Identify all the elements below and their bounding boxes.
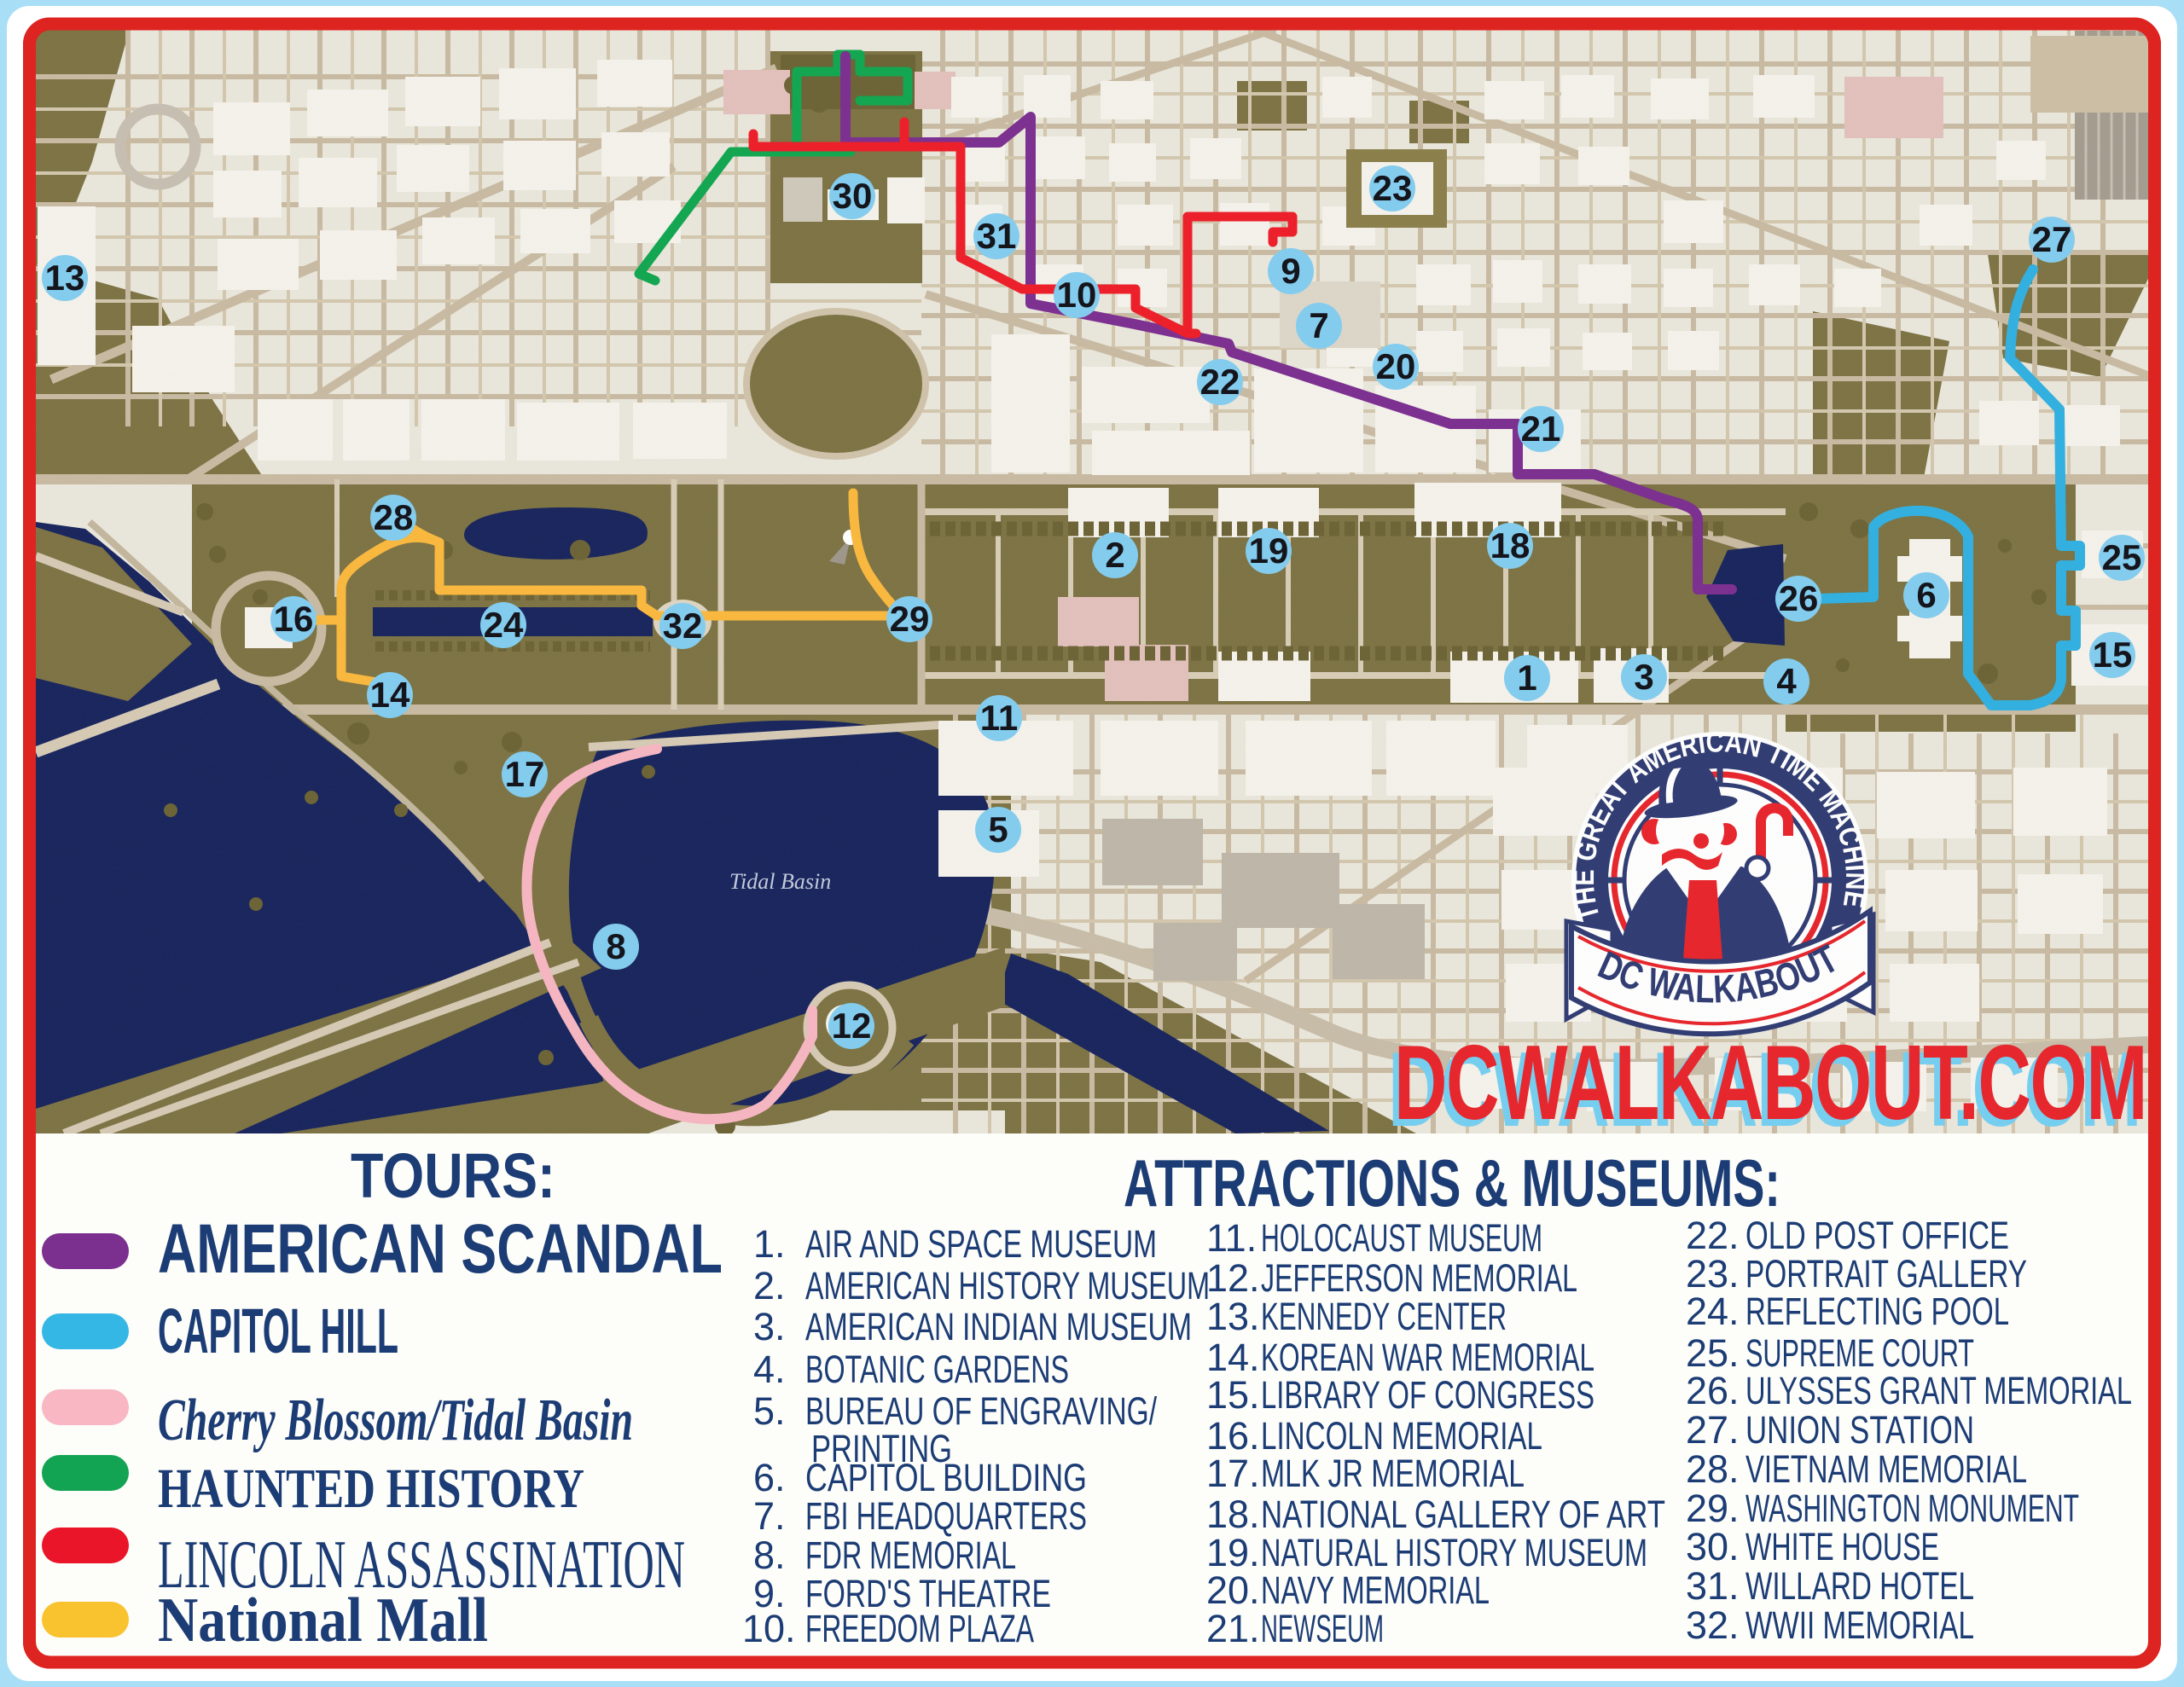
- svg-text:AMERICAN SCANDAL: AMERICAN SCANDAL: [158, 1210, 723, 1288]
- svg-text:AMERICAN INDIAN MUSEUM: AMERICAN INDIAN MUSEUM: [805, 1305, 1192, 1348]
- svg-text:CAPITOL HILL: CAPITOL HILL: [158, 1296, 398, 1366]
- svg-text:WASHINGTON MONUMENT: WASHINGTON MONUMENT: [1745, 1487, 2079, 1530]
- svg-text:5.: 5.: [753, 1389, 786, 1433]
- svg-text:NEWSEUM: NEWSEUM: [1261, 1607, 1384, 1650]
- svg-text:3.: 3.: [753, 1305, 786, 1348]
- svg-text:12.: 12.: [1206, 1256, 1260, 1300]
- svg-text:4.: 4.: [753, 1348, 786, 1391]
- svg-text:AIR AND SPACE MUSEUM: AIR AND SPACE MUSEUM: [805, 1222, 1157, 1266]
- svg-text:20.: 20.: [1206, 1568, 1260, 1612]
- svg-text:WWII MEMORIAL: WWII MEMORIAL: [1745, 1603, 1974, 1647]
- svg-text:11.: 11.: [1206, 1216, 1257, 1260]
- svg-text:6.: 6.: [753, 1456, 786, 1499]
- svg-text:JEFFERSON MEMORIAL: JEFFERSON MEMORIAL: [1261, 1256, 1577, 1300]
- svg-text:CAPITOL BUILDING: CAPITOL BUILDING: [805, 1456, 1087, 1499]
- svg-text:AMERICAN HISTORY MUSEUM: AMERICAN HISTORY MUSEUM: [805, 1264, 1210, 1307]
- svg-text:28.: 28.: [1686, 1447, 1740, 1491]
- svg-text:7.: 7.: [753, 1494, 786, 1538]
- svg-text:WHITE HOUSE: WHITE HOUSE: [1745, 1525, 1939, 1568]
- svg-text:1.: 1.: [753, 1222, 786, 1266]
- svg-text:17.: 17.: [1206, 1452, 1260, 1495]
- svg-text:24.: 24.: [1686, 1290, 1740, 1333]
- svg-text:FREEDOM PLAZA: FREEDOM PLAZA: [805, 1607, 1034, 1650]
- svg-text:8.: 8.: [753, 1533, 786, 1577]
- svg-text:KENNEDY CENTER: KENNEDY CENTER: [1261, 1295, 1507, 1338]
- svg-text:22.: 22.: [1686, 1214, 1740, 1257]
- svg-text:32.: 32.: [1686, 1603, 1740, 1647]
- svg-text:BOTANIC GARDENS: BOTANIC GARDENS: [805, 1348, 1069, 1391]
- svg-text:National Mall: National Mall: [158, 1586, 488, 1655]
- svg-text:NAVY MEMORIAL: NAVY MEMORIAL: [1261, 1568, 1490, 1612]
- svg-text:ULYSSES GRANT MEMORIAL: ULYSSES GRANT MEMORIAL: [1745, 1369, 2132, 1412]
- svg-text:26.: 26.: [1686, 1369, 1740, 1412]
- svg-text:WILLARD HOTEL: WILLARD HOTEL: [1745, 1564, 1974, 1608]
- svg-text:ATTRACTIONS & MUSEUMS:: ATTRACTIONS & MUSEUMS:: [1124, 1145, 1780, 1220]
- svg-text:27.: 27.: [1686, 1408, 1740, 1452]
- svg-text:MLK JR MEMORIAL: MLK JR MEMORIAL: [1261, 1452, 1525, 1495]
- svg-text:Cherry Blossom/Tidal Basin: Cherry Blossom/Tidal Basin: [158, 1388, 633, 1453]
- svg-text:10.: 10.: [742, 1607, 796, 1650]
- svg-text:15.: 15.: [1206, 1373, 1260, 1417]
- svg-text:OLD POST OFFICE: OLD POST OFFICE: [1745, 1214, 2009, 1257]
- svg-text:30.: 30.: [1686, 1525, 1740, 1568]
- svg-text:HAUNTED HISTORY: HAUNTED HISTORY: [158, 1458, 584, 1520]
- svg-text:31.: 31.: [1686, 1564, 1740, 1608]
- svg-text:2.: 2.: [753, 1264, 786, 1307]
- svg-text:UNION STATION: UNION STATION: [1745, 1408, 1974, 1452]
- svg-text:VIETNAM MEMORIAL: VIETNAM MEMORIAL: [1745, 1447, 2027, 1491]
- svg-text:13.: 13.: [1206, 1295, 1260, 1338]
- svg-text:29.: 29.: [1686, 1487, 1740, 1530]
- svg-text:FDR MEMORIAL: FDR MEMORIAL: [805, 1533, 1016, 1577]
- svg-text:NATIONAL GALLERY OF ART: NATIONAL GALLERY OF ART: [1261, 1493, 1665, 1536]
- svg-text:TOURS:: TOURS:: [351, 1140, 555, 1211]
- svg-text:FBI HEADQUARTERS: FBI HEADQUARTERS: [805, 1494, 1087, 1538]
- svg-text:LIBRARY OF CONGRESS: LIBRARY OF CONGRESS: [1261, 1373, 1594, 1417]
- svg-text:18.: 18.: [1206, 1493, 1260, 1536]
- svg-text:21.: 21.: [1206, 1607, 1260, 1650]
- svg-text:HOLOCAUST MUSEUM: HOLOCAUST MUSEUM: [1261, 1216, 1542, 1260]
- svg-text:REFLECTING POOL: REFLECTING POOL: [1745, 1290, 2009, 1333]
